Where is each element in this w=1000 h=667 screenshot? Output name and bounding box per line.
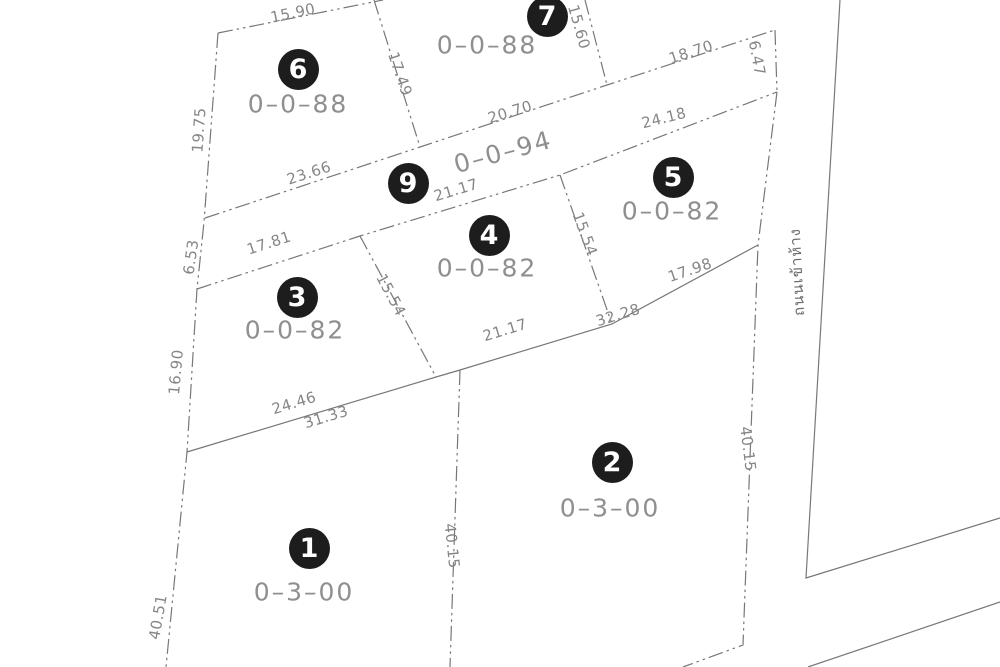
divider-plot1-plot2 <box>450 370 460 667</box>
strip9-right-edge <box>775 30 777 92</box>
survey-plan-sheet: 15.9019.756.5316.9040.5117.4915.6023.662… <box>0 0 1000 667</box>
plot-area-label: 0–3–00 <box>560 494 661 523</box>
plot-area-label: 0–0–88 <box>248 90 349 119</box>
plot-number-badge: 5 <box>653 157 694 198</box>
plot-area-label: 0–0–82 <box>245 316 346 345</box>
plot-area-label: 0–0–82 <box>437 254 538 283</box>
plot-area-label: 0–0–82 <box>622 197 723 226</box>
plot-number-badge: 6 <box>278 49 319 90</box>
plot-number-badge: 2 <box>592 442 633 483</box>
plot-area-label: 0–0–88 <box>437 31 538 60</box>
right-boundary-line <box>683 92 777 667</box>
road-name-label: ถนนเข้าห้าง <box>783 227 812 316</box>
plot-number-badge: 4 <box>469 215 510 256</box>
plot-number-badge: 1 <box>289 528 330 569</box>
road-edge-line <box>806 0 1000 578</box>
plot-number-badge: 9 <box>388 163 429 204</box>
plot-area-label: 0–3–00 <box>254 578 355 607</box>
plot-number-badge: 3 <box>277 277 318 318</box>
dimension-label: 19.75 <box>188 107 209 154</box>
road-edge-lower-line <box>808 602 1000 667</box>
